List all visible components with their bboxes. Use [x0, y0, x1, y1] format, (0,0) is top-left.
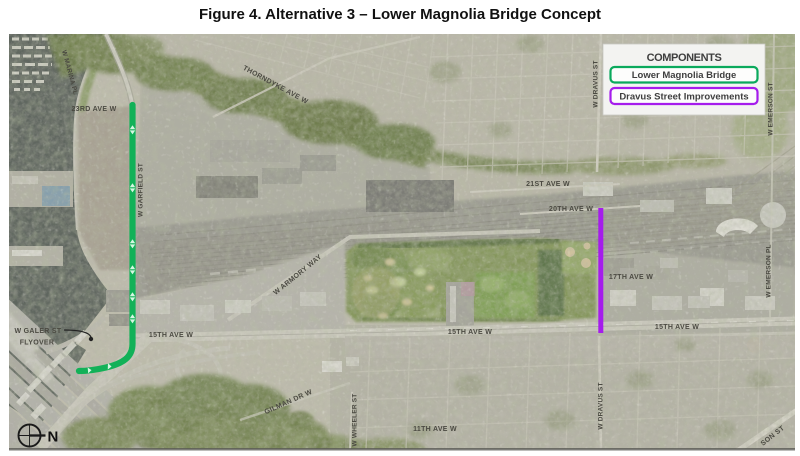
- svg-text:23RD AVE W: 23RD AVE W: [71, 106, 116, 113]
- svg-text:COMPONENTS: COMPONENTS: [647, 52, 722, 64]
- svg-text:Dravus Street Improvements: Dravus Street Improvements: [619, 92, 748, 103]
- svg-text:17TH AVE W: 17TH AVE W: [609, 274, 653, 281]
- svg-text:W DRAVUS ST: W DRAVUS ST: [593, 60, 600, 107]
- svg-text:21ST AVE W: 21ST AVE W: [526, 181, 570, 188]
- svg-text:W GARFIELD ST: W GARFIELD ST: [138, 163, 145, 217]
- svg-text:W EMERSON PL: W EMERSON PL: [766, 244, 773, 297]
- svg-text:W EMERSON ST: W EMERSON ST: [768, 82, 775, 135]
- svg-text:FLYOVER: FLYOVER: [20, 340, 55, 347]
- svg-text:W DRAVUS ST: W DRAVUS ST: [598, 382, 605, 429]
- svg-text:15TH AVE W: 15TH AVE W: [448, 329, 492, 336]
- svg-text:W WHEELER ST: W WHEELER ST: [352, 394, 359, 447]
- svg-text:N: N: [48, 429, 59, 446]
- svg-text:11TH AVE W: 11TH AVE W: [413, 426, 457, 433]
- svg-text:15TH AVE W: 15TH AVE W: [655, 324, 699, 331]
- svg-text:Lower Magnolia Bridge: Lower Magnolia Bridge: [632, 70, 737, 81]
- svg-text:W GALER ST: W GALER ST: [15, 328, 62, 335]
- svg-text:15TH AVE W: 15TH AVE W: [149, 332, 193, 339]
- svg-text:20TH AVE W: 20TH AVE W: [549, 206, 593, 213]
